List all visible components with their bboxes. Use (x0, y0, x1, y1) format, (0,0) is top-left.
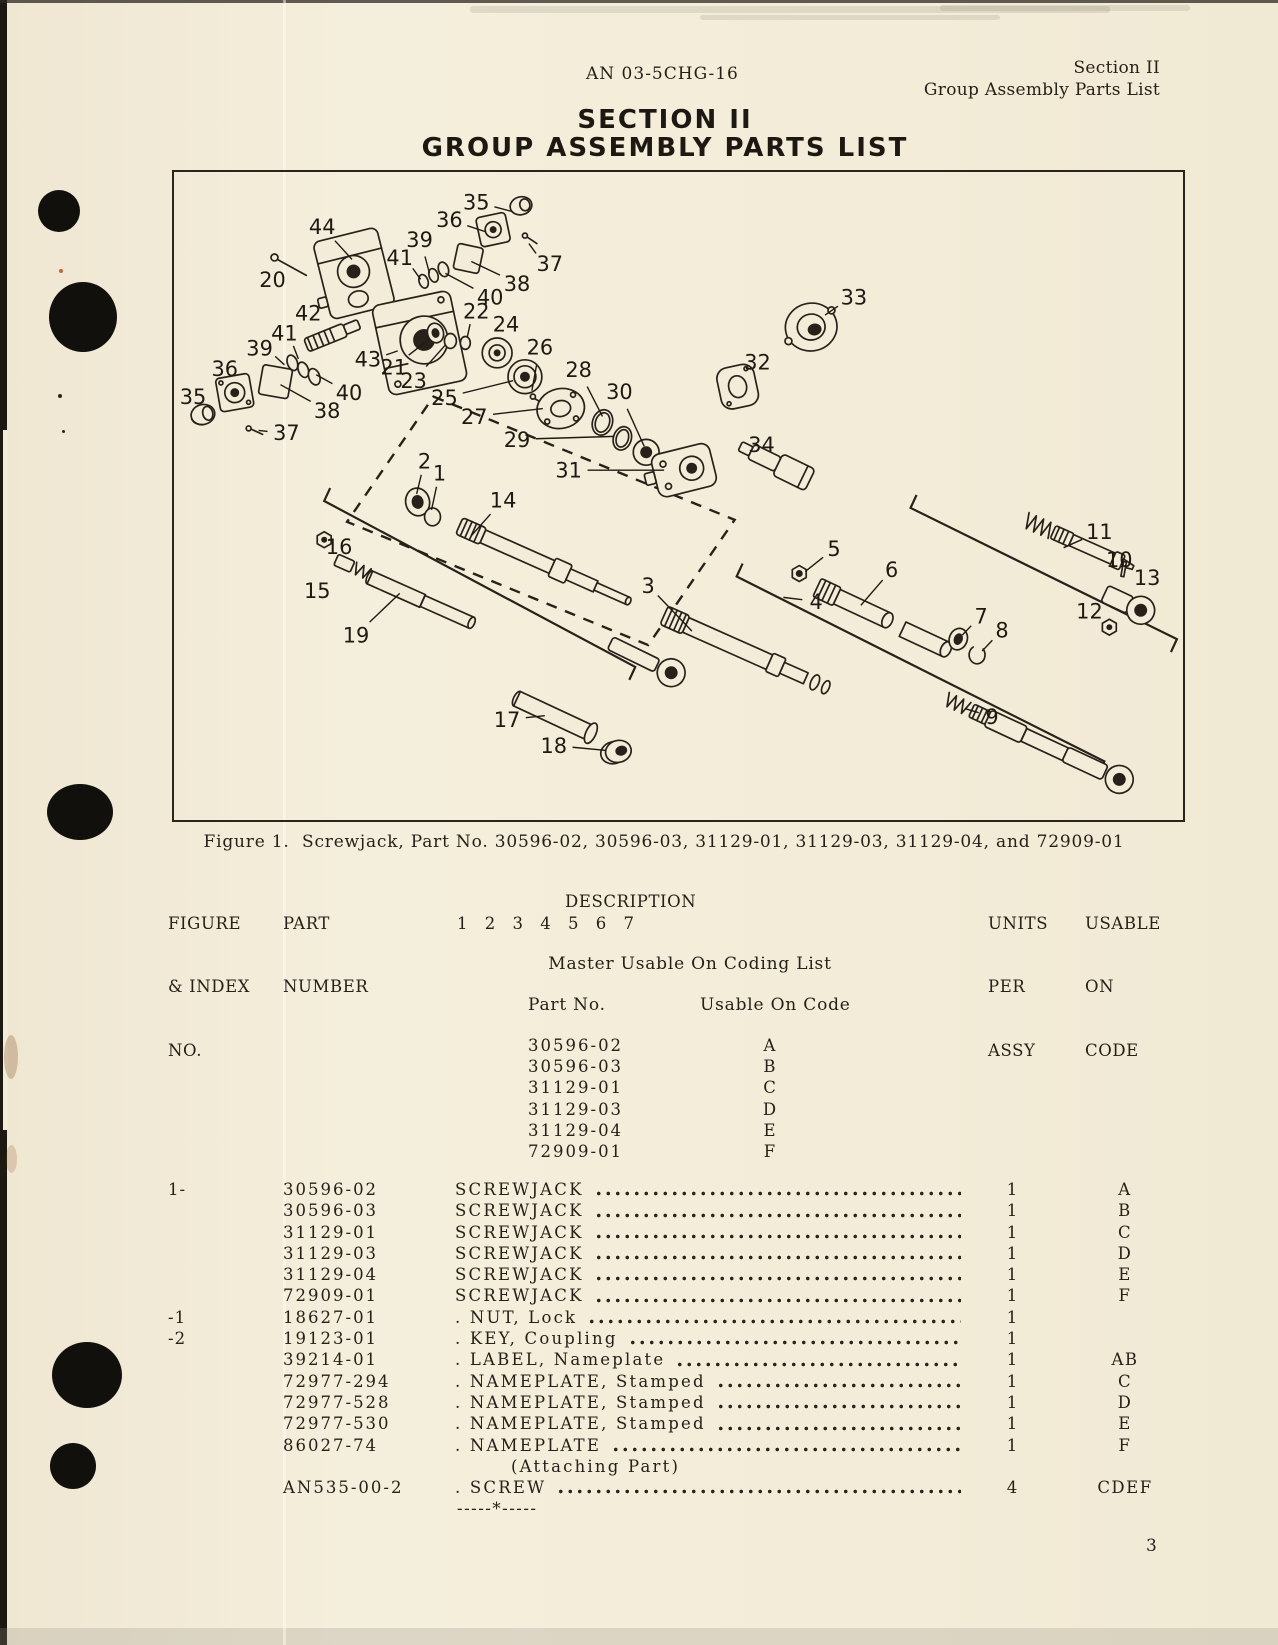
screwjack-exploded-diagram: 3536443941372038404222244139264321362823… (174, 172, 1183, 820)
figure-callout-22: 22 (463, 300, 490, 324)
figure-callout-38: 38 (314, 399, 341, 423)
dot-leader (716, 1425, 961, 1432)
coding-list-row: 31129-04E (528, 1120, 800, 1141)
parts-row: 72909-01SCREWJACK1F (168, 1285, 1190, 1306)
title-line1: SECTION II (52, 106, 1278, 134)
callout-leader-39 (425, 256, 430, 273)
dot-leader (675, 1361, 961, 1368)
row-units-per-assy: 1 (965, 1371, 1060, 1392)
row-units-per-assy: 1 (965, 1307, 1060, 1328)
figure-callout-33: 33 (841, 286, 868, 310)
figure-callout-43: 43 (355, 347, 382, 371)
row-description: SCREWJACK (455, 1222, 965, 1243)
row-part-number: 31129-03 (283, 1243, 455, 1264)
row-description: SCREWJACK (455, 1264, 965, 1285)
row-description-text: . NUT, Lock (455, 1307, 577, 1328)
figure-callout-11: 11 (1086, 520, 1113, 544)
figure-callout-16: 16 (326, 535, 353, 559)
figure-callout-6: 6 (885, 558, 898, 582)
figure-callout-41: 41 (271, 321, 298, 345)
row-usable-on-code: CDEF (1060, 1477, 1190, 1498)
figure-callout-2: 2 (418, 450, 431, 474)
row-usable-on-code: C (1060, 1371, 1190, 1392)
col-header-part-number: PART NUMBER (283, 870, 368, 1040)
row-description-text: . LABEL, Nameplate (455, 1349, 665, 1370)
row-part-number: 30596-03 (283, 1200, 455, 1221)
doc-number: AN 03-5CHG-16 (586, 64, 739, 84)
dot-leader (628, 1339, 961, 1346)
dot-leader (594, 1190, 961, 1197)
row-description-text: . NAMEPLATE (455, 1435, 601, 1456)
row-description: SCREWJACK (455, 1285, 965, 1306)
callout-leader-1 (432, 487, 437, 510)
col-header-description-levels: 1 2 3 4 5 6 7 (457, 913, 636, 934)
row-description-text: SCREWJACK (455, 1200, 584, 1221)
row-part-number: 30596-02 (283, 1179, 455, 1200)
figure-callout-9: 9 (985, 705, 998, 729)
coding-part-number: 31129-01 (528, 1077, 740, 1098)
scan-ghost-text (940, 5, 1190, 11)
row-description-text: SCREWJACK (455, 1243, 584, 1264)
scan-edge-left-fade (3, 430, 8, 1130)
row-part-number: 72977-530 (283, 1413, 455, 1434)
row-part-number: 19123-01 (283, 1328, 455, 1349)
row-part-number: 86027-74 (283, 1435, 455, 1456)
title-line2: GROUP ASSEMBLY PARTS LIST (52, 134, 1278, 162)
figure-callout-37: 37 (273, 421, 300, 445)
figure-callout-25: 25 (431, 386, 458, 410)
row-units-per-assy: 1 (965, 1200, 1060, 1221)
row-description: . KEY, Coupling (455, 1328, 965, 1349)
callout-leader-8 (982, 640, 992, 651)
coding-part-number: 30596-03 (528, 1056, 740, 1077)
row-part-number: 18627-01 (283, 1307, 455, 1328)
callout-leader-25 (463, 381, 513, 393)
figure-callout-13: 13 (1134, 566, 1161, 590)
col-header-units: UNITS PER ASSY (988, 870, 1048, 1104)
parts-row: 30596-03SCREWJACK1B (168, 1200, 1190, 1221)
callout-leader-37 (529, 244, 536, 254)
figure-callout-19: 19 (343, 624, 370, 648)
row-units-per-assy: 1 (965, 1285, 1060, 1306)
coding-usable-code: A (740, 1035, 800, 1056)
row-usable-on-code: AB (1060, 1349, 1190, 1370)
manual-page: AN 03-5CHG-16 Section II Group Assembly … (0, 0, 1278, 1645)
scan-ghost-text (700, 15, 1000, 20)
parts-row: 31129-03SCREWJACK1D (168, 1243, 1190, 1264)
paper-stain (4, 1035, 18, 1079)
row-units-per-assy: 1 (965, 1179, 1060, 1200)
figure-caption: Figure 1. Screwjack, Part No. 30596-02, … (50, 832, 1278, 852)
parts-row: 1-30596-02SCREWJACK1A (168, 1179, 1190, 1200)
row-description: SCREWJACK (455, 1179, 965, 1200)
coding-part-number: 31129-04 (528, 1120, 740, 1141)
row-units-per-assy: 4 (965, 1477, 1060, 1498)
row-usable-on-code: F (1060, 1285, 1190, 1306)
callout-leader-27 (493, 409, 543, 415)
row-description-text: . SCREW (455, 1477, 546, 1498)
parts-row: 39214-01. LABEL, Nameplate1AB (168, 1349, 1190, 1370)
figure-callout-18: 18 (540, 734, 567, 758)
coding-usable-code: C (740, 1077, 800, 1098)
paper-speck (59, 269, 63, 273)
figure-callout-29: 29 (504, 428, 531, 452)
figure-callout-42: 42 (295, 302, 322, 326)
dot-leader (594, 1297, 961, 1304)
coding-list-row: 72909-01F (528, 1141, 800, 1162)
scan-edge-bottom (0, 1628, 1278, 1645)
header-section-block: Section II Group Assembly Parts List (924, 58, 1160, 101)
figure-callout-14: 14 (490, 488, 517, 512)
parts-row: -219123-01. KEY, Coupling1 (168, 1328, 1190, 1349)
figure-callout-38: 38 (504, 272, 531, 296)
row-description: (Attaching Part) (455, 1456, 965, 1477)
punch-hole-mark (50, 1443, 96, 1489)
parts-row: -118627-01. NUT, Lock1 (168, 1307, 1190, 1328)
header-section: Section II (924, 58, 1160, 80)
callout-leader-19 (370, 593, 400, 622)
coding-list-row: 31129-03D (528, 1099, 800, 1120)
row-description-text: -----*----- (455, 1498, 538, 1519)
punch-hole-mark (49, 282, 117, 352)
page-number: 3 (1146, 1536, 1157, 1556)
coding-list-title: Master Usable On Coding List (500, 954, 880, 974)
figure-callout-26: 26 (527, 335, 554, 359)
row-description-text: SCREWJACK (455, 1264, 584, 1285)
row-description-text: (Attaching Part) (455, 1456, 680, 1477)
callout-leader-28 (587, 387, 602, 417)
row-part-number: AN535-00-2 (283, 1477, 455, 1498)
figure-callout-36: 36 (436, 208, 463, 232)
figure-callout-31: 31 (555, 459, 582, 483)
figure-callout-10: 10 (1106, 548, 1133, 572)
figure-callout-35: 35 (180, 385, 207, 409)
callout-leader-40 (445, 273, 473, 288)
punch-hole-mark (38, 190, 80, 232)
dot-leader (594, 1212, 961, 1219)
row-description-text: . NAMEPLATE, Stamped (455, 1371, 706, 1392)
figure-callout-3: 3 (642, 574, 655, 598)
figure-callout-24: 24 (493, 313, 520, 337)
row-description: . NAMEPLATE, Stamped (455, 1392, 965, 1413)
row-part-number: 72977-294 (283, 1371, 455, 1392)
row-description: . LABEL, Nameplate (455, 1349, 965, 1370)
row-description: SCREWJACK (455, 1200, 965, 1221)
figure-callout-28: 28 (565, 358, 592, 382)
figure-callout-32: 32 (744, 350, 771, 374)
figure-callout-5: 5 (827, 537, 840, 561)
figure-callout-35: 35 (463, 190, 490, 214)
dot-leader (594, 1233, 961, 1240)
row-description-text: SCREWJACK (455, 1285, 584, 1306)
figure-callout-34: 34 (748, 433, 775, 457)
punch-hole-mark (52, 1342, 122, 1408)
dot-leader (594, 1275, 961, 1282)
figure-callout-39: 39 (246, 336, 273, 360)
figure-callout-20: 20 (259, 268, 286, 292)
row-part-number: 72909-01 (283, 1285, 455, 1306)
parts-row: 86027-74. NAMEPLATE1F (168, 1435, 1190, 1456)
coding-list-rows: 30596-02A30596-03B31129-01C31129-03D3112… (528, 1035, 800, 1162)
figure-callout-8: 8 (995, 619, 1008, 643)
row-part-number: 31129-04 (283, 1264, 455, 1285)
coding-list-col-code: Usable On Code (700, 995, 851, 1015)
col-header-figure-index: FIGURE & INDEX NO. (168, 870, 250, 1104)
row-usable-on-code: D (1060, 1392, 1190, 1413)
row-usable-on-code: A (1060, 1179, 1190, 1200)
figure-callout-23: 23 (400, 369, 427, 393)
row-units-per-assy: 1 (965, 1435, 1060, 1456)
row-units-per-assy: 1 (965, 1349, 1060, 1370)
coding-usable-code: E (740, 1120, 800, 1141)
figure-callout-37: 37 (537, 252, 564, 276)
row-figure-index: -1 (168, 1307, 283, 1328)
callout-leader-4 (783, 597, 802, 599)
figure-callout-12: 12 (1076, 600, 1103, 624)
row-units-per-assy: 1 (965, 1222, 1060, 1243)
row-description: . NAMEPLATE, Stamped (455, 1371, 965, 1392)
parts-row: AN535-00-2. SCREW4CDEF (168, 1477, 1190, 1498)
dot-leader (716, 1403, 961, 1410)
col-header-usable-on: USABLE ON CODE (1085, 870, 1161, 1104)
parts-row: 72977-528. NAMEPLATE, Stamped1D (168, 1392, 1190, 1413)
callout-leader-6 (861, 580, 883, 605)
row-part-number: 39214-01 (283, 1349, 455, 1370)
row-usable-on-code: D (1060, 1243, 1190, 1264)
parts-row: 31129-04SCREWJACK1E (168, 1264, 1190, 1285)
row-description: . SCREW (455, 1477, 965, 1498)
paper-speck (62, 430, 65, 433)
header-section-subtitle: Group Assembly Parts List (924, 80, 1160, 102)
coding-part-number: 30596-02 (528, 1035, 740, 1056)
parts-row: 72977-530. NAMEPLATE, Stamped1E (168, 1413, 1190, 1434)
figure-1-exploded-view: 3536443941372038404222244139264321362823… (172, 170, 1185, 822)
row-description-text: SCREWJACK (455, 1222, 584, 1243)
dot-leader (587, 1318, 961, 1325)
parts-list: 1-30596-02SCREWJACK1A30596-03SCREWJACK1B… (168, 1179, 1190, 1520)
row-figure-index: 1- (168, 1179, 283, 1200)
row-part-number: 31129-01 (283, 1222, 455, 1243)
dashed-boundary (347, 397, 735, 645)
callout-leader-41 (413, 268, 421, 279)
figure-callout-41: 41 (386, 246, 413, 270)
callout-leader-37 (259, 430, 268, 431)
figure-callout-44: 44 (309, 215, 336, 239)
coding-list-row: 30596-02A (528, 1035, 800, 1056)
row-description: . NAMEPLATE (455, 1435, 965, 1456)
coding-list-row: 31129-01C (528, 1077, 800, 1098)
dot-leader (611, 1446, 961, 1453)
coding-usable-code: F (740, 1141, 800, 1162)
dot-leader (556, 1488, 961, 1495)
row-units-per-assy: 1 (965, 1328, 1060, 1349)
parts-row: 72977-294. NAMEPLATE, Stamped1C (168, 1371, 1190, 1392)
row-description: -----*----- (455, 1498, 965, 1519)
callout-leader-39 (275, 356, 284, 364)
paper-stain (6, 1145, 17, 1173)
parts-row: -----*----- (168, 1498, 1190, 1519)
dot-leader (716, 1382, 961, 1389)
figure-callout-7: 7 (974, 605, 987, 629)
row-usable-on-code: E (1060, 1413, 1190, 1434)
coding-list-row: 30596-03B (528, 1056, 800, 1077)
coding-part-number: 31129-03 (528, 1099, 740, 1120)
figure-callout-36: 36 (212, 357, 239, 381)
coding-list-col-part: Part No. (528, 995, 606, 1015)
row-description-text: SCREWJACK (455, 1179, 584, 1200)
figure-callout-17: 17 (494, 708, 521, 732)
row-units-per-assy: 1 (965, 1413, 1060, 1434)
col-header-description: DESCRIPTION (565, 891, 696, 912)
coding-usable-code: B (740, 1056, 800, 1077)
figure-callout-1: 1 (433, 462, 446, 486)
parts-row: 31129-01SCREWJACK1C (168, 1222, 1190, 1243)
callout-leader-29 (536, 436, 615, 438)
row-description-text: . NAMEPLATE, Stamped (455, 1413, 706, 1434)
figure-callout-15: 15 (304, 579, 331, 603)
row-units-per-assy: 1 (965, 1392, 1060, 1413)
paper-speck (58, 394, 62, 398)
callout-leader-22 (467, 324, 470, 337)
figure-callout-4: 4 (810, 590, 823, 614)
page-title: SECTION II GROUP ASSEMBLY PARTS LIST (52, 106, 1278, 162)
figure-callout-30: 30 (606, 380, 633, 404)
coding-part-number: 72909-01 (528, 1141, 740, 1162)
callout-leader-5 (805, 557, 823, 571)
row-description-text: . NAMEPLATE, Stamped (455, 1392, 706, 1413)
figure-callout-27: 27 (461, 405, 488, 429)
row-description: . NUT, Lock (455, 1307, 965, 1328)
scan-edge-top (0, 0, 1278, 3)
row-part-number: 72977-528 (283, 1392, 455, 1413)
coding-usable-code: D (740, 1099, 800, 1120)
row-description: . NAMEPLATE, Stamped (455, 1413, 965, 1434)
row-usable-on-code: B (1060, 1200, 1190, 1221)
row-figure-index: -2 (168, 1328, 283, 1349)
row-usable-on-code: E (1060, 1264, 1190, 1285)
row-units-per-assy: 1 (965, 1243, 1060, 1264)
row-units-per-assy: 1 (965, 1264, 1060, 1285)
row-usable-on-code: F (1060, 1435, 1190, 1456)
row-description-text: . KEY, Coupling (455, 1328, 618, 1349)
parts-row: (Attaching Part) (168, 1456, 1190, 1477)
row-usable-on-code: C (1060, 1222, 1190, 1243)
dot-leader (594, 1254, 961, 1261)
row-description: SCREWJACK (455, 1243, 965, 1264)
